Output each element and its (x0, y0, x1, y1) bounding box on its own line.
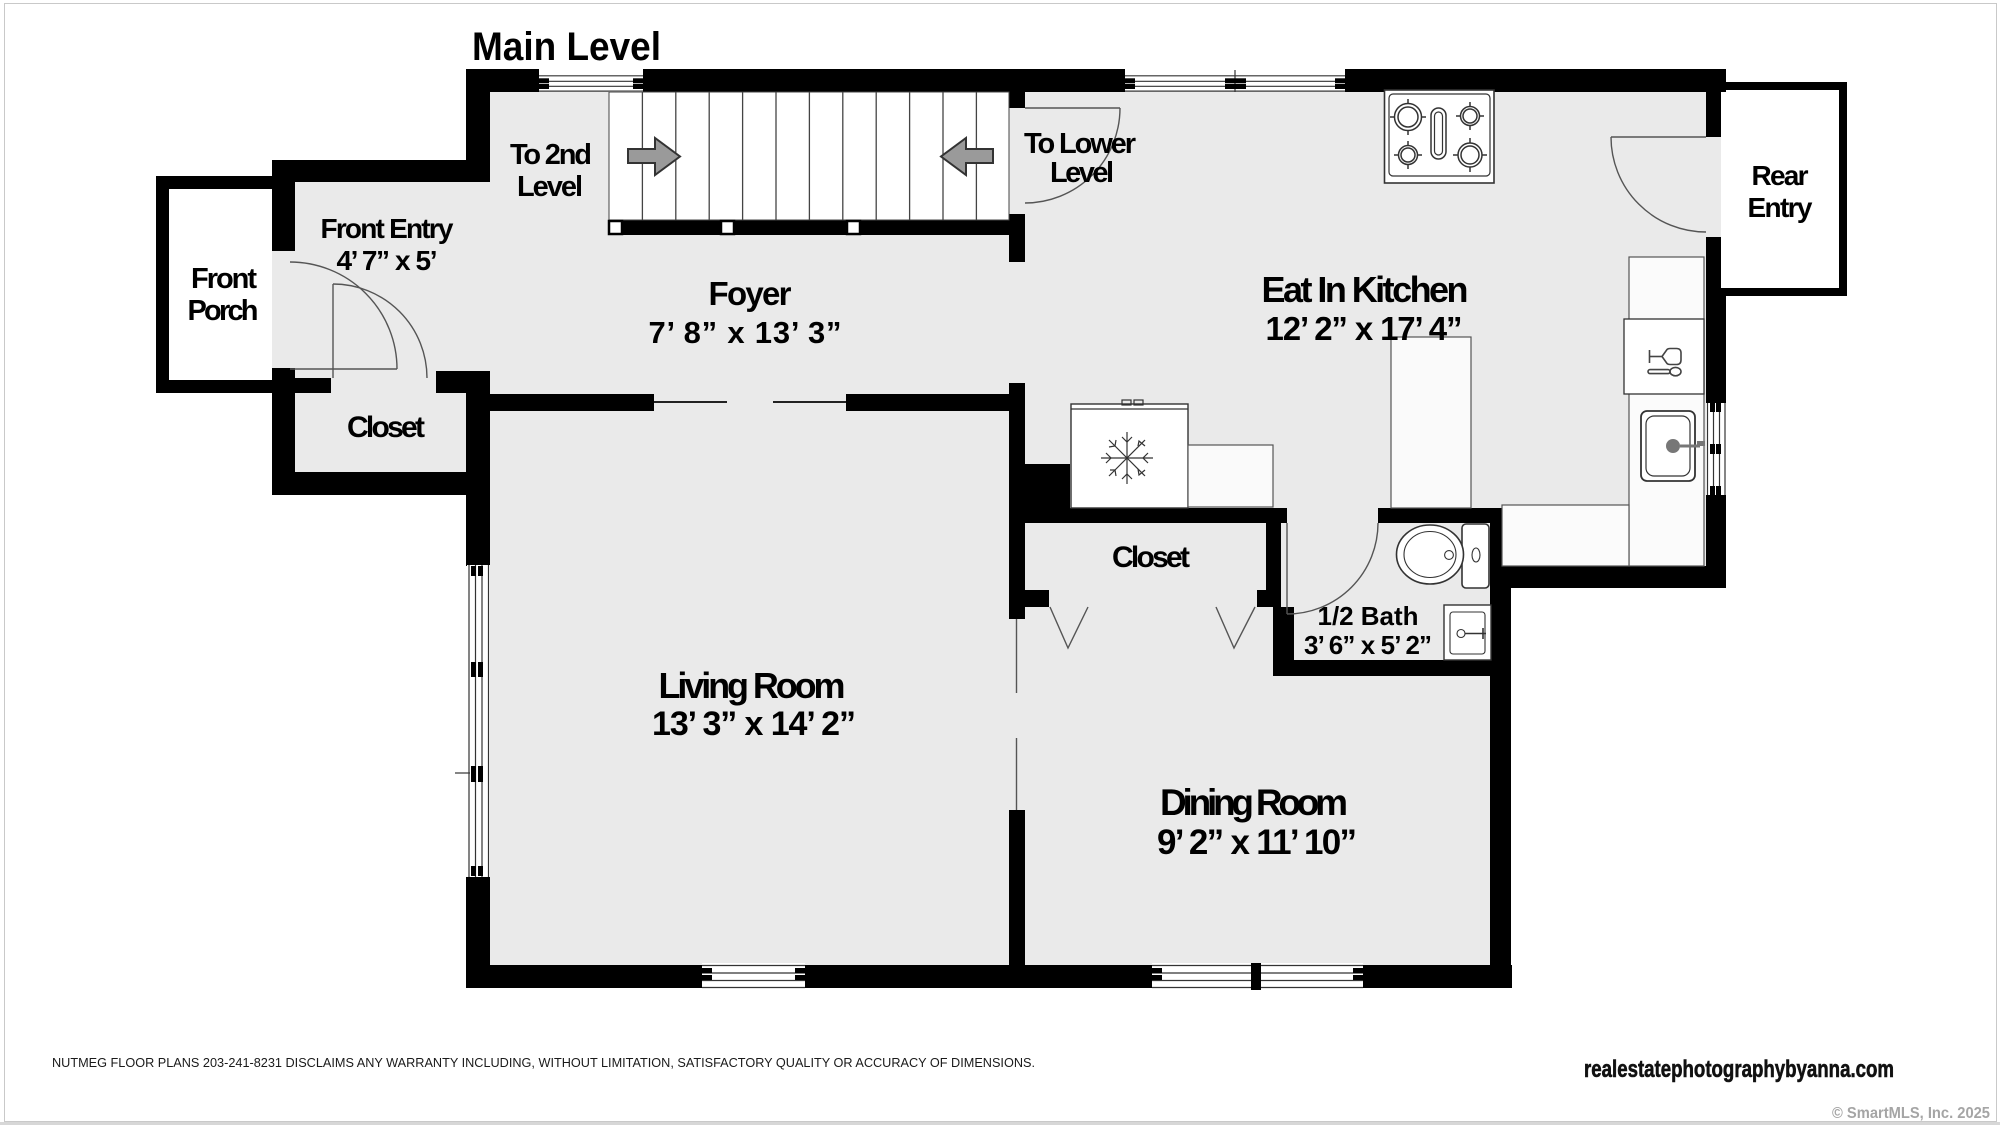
svg-text:Main Level: Main Level (472, 25, 661, 69)
svg-text:© SmartMLS, Inc. 2025: © SmartMLS, Inc. 2025 (1832, 1105, 1990, 1122)
svg-text:Dining Room: Dining Room (1160, 782, 1348, 823)
svg-text:Porch: Porch (188, 295, 259, 327)
svg-text:NUTMEG FLOOR PLANS 203-241-823: NUTMEG FLOOR PLANS 203-241-8231 DISCLAIM… (52, 1055, 1035, 1070)
svg-text:To Lower: To Lower (1024, 128, 1136, 160)
svg-text:9’ 2” x 11’ 10”: 9’ 2” x 11’ 10” (1157, 823, 1357, 862)
svg-text:Front: Front (191, 263, 257, 295)
svg-text:Foyer: Foyer (709, 275, 792, 312)
svg-text:3’ 6” x 5’ 2”: 3’ 6” x 5’ 2” (1304, 630, 1432, 660)
svg-text:1/2 Bath: 1/2 Bath (1318, 601, 1419, 631)
svg-text:Entry: Entry (1748, 192, 1813, 223)
svg-text:realestatephotographybyanna.co: realestatephotographybyanna.com (1584, 1056, 1894, 1083)
svg-text:Living Room: Living Room (659, 665, 846, 706)
svg-text:To 2nd: To 2nd (510, 139, 592, 171)
svg-text:Rear: Rear (1752, 160, 1809, 191)
svg-text:12’ 2” x 17’ 4”: 12’ 2” x 17’ 4” (1266, 310, 1463, 347)
svg-text:13’ 3” x 14’ 2”: 13’ 3” x 14’ 2” (652, 705, 856, 743)
svg-text:Closet: Closet (1112, 541, 1190, 574)
svg-text:Eat In Kitchen: Eat In Kitchen (1262, 269, 1469, 310)
svg-text:7’ 8” x 13’ 3”: 7’ 8” x 13’ 3” (649, 315, 842, 350)
svg-text:Level: Level (1050, 157, 1114, 189)
svg-text:Level: Level (517, 171, 583, 203)
svg-text:Front Entry: Front Entry (321, 213, 454, 244)
svg-text:4’ 7” x 5’: 4’ 7” x 5’ (337, 245, 438, 276)
svg-text:Closet: Closet (347, 411, 425, 444)
